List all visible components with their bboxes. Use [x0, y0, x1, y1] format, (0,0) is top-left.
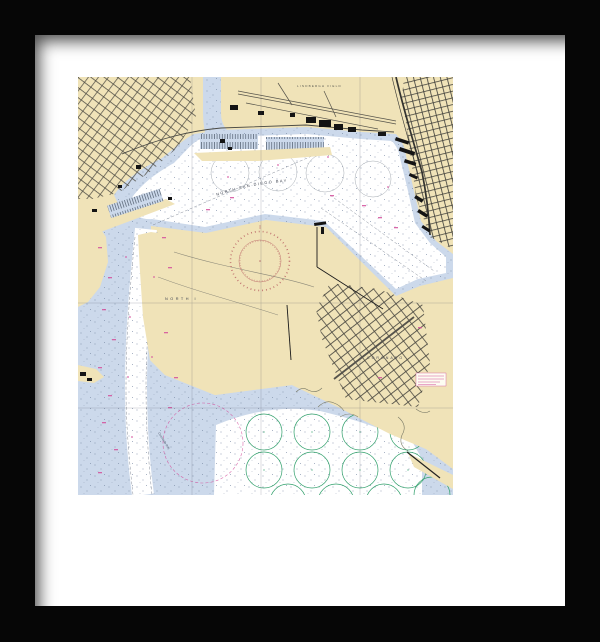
nautical-chart-svg: NORTH SAN DIEGO BAY NORTH I CORONADO LIN… — [78, 77, 453, 495]
north-island-label: NORTH I — [165, 297, 198, 301]
chart-note-box — [416, 373, 446, 386]
coronado-label: CORONADO — [367, 356, 404, 360]
nautical-chart: NORTH SAN DIEGO BAY NORTH I CORONADO LIN… — [78, 77, 453, 495]
airport-label: LINDBERGH FIELD — [297, 84, 342, 88]
